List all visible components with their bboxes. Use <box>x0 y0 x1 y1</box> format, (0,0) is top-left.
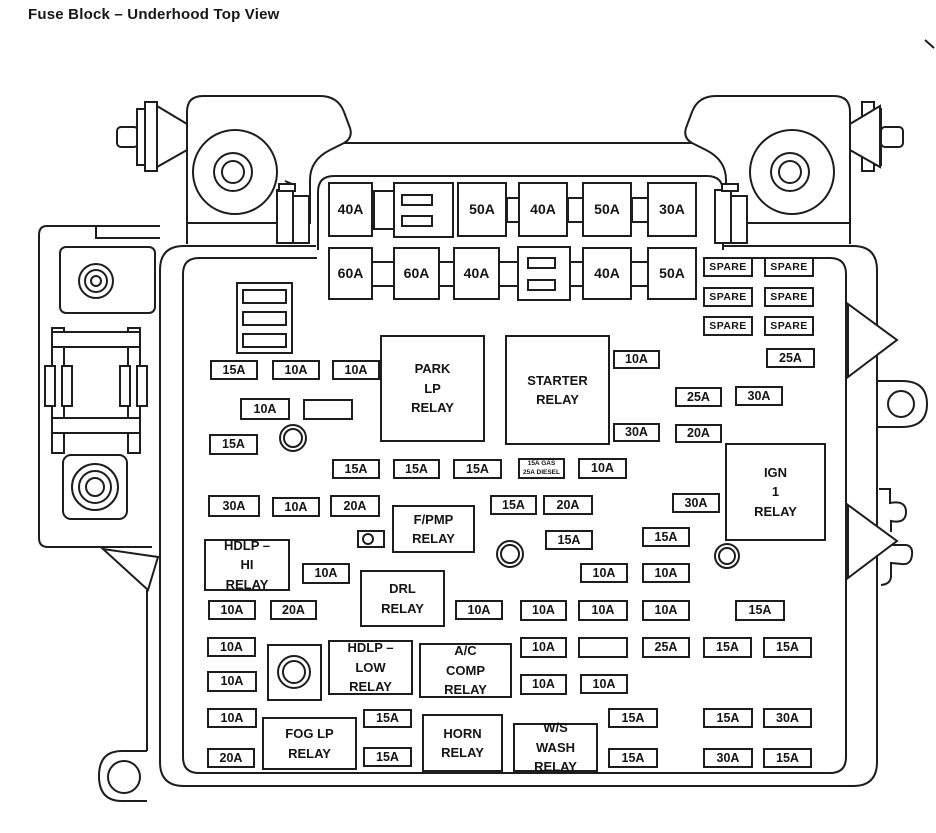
relay-fog-lp: FOG LPRELAY <box>262 717 357 770</box>
fuse-15a: 15A <box>545 530 593 550</box>
fuse-30a: 30A <box>735 386 783 406</box>
fuse-60a: 60A <box>393 247 440 300</box>
fuse-60a: 60A <box>328 247 373 300</box>
fuse-25a: 25A <box>766 348 815 368</box>
fuse-20a: 20A <box>330 495 380 517</box>
fuse-15a: 15A <box>642 527 690 547</box>
relay-ws-wash: W/SWASHRELAY <box>513 723 598 772</box>
fuse-40a: 40A <box>453 247 500 300</box>
fuse-15a: 15A <box>490 495 537 515</box>
blank-fuse <box>303 399 353 420</box>
fuse-block-diagram: Fuse Block – Underhood Top View <box>0 0 936 833</box>
fuse-40a: 40A <box>582 247 632 300</box>
fuse-10a: 10A <box>455 600 503 620</box>
fuse-10a: 10A <box>207 637 256 657</box>
blank-fuse <box>578 637 628 658</box>
fuse-10a: 10A <box>520 674 567 695</box>
fuse-10a: 10A <box>580 674 628 694</box>
fuse-15a: 15A <box>393 459 440 479</box>
fuse-15a: 15A <box>763 748 812 768</box>
relay-horn: HORNRELAY <box>422 714 503 772</box>
fuse-25a: 25A <box>675 387 722 407</box>
fuse-and-relay-layer: 40A50A40A50A30A60A60A40A40A50A25A10A25A3… <box>0 0 936 833</box>
fuse-10a: 10A <box>207 708 257 728</box>
fuse-50a: 50A <box>582 182 632 237</box>
fuse-10a: 10A <box>208 600 256 620</box>
fuse-30a: 30A <box>703 748 753 768</box>
relay-park-lp: PARKLPRELAY <box>380 335 485 442</box>
fuse-10a: 10A <box>578 458 627 479</box>
fuse-15a: 15A <box>363 709 412 728</box>
relay-ac-comp: A/CCOMPRELAY <box>419 643 512 698</box>
relay-ign-1: IGN1RELAY <box>725 443 826 541</box>
fuse-15a: 15A <box>453 459 502 479</box>
fuse-10a: 10A <box>642 563 690 583</box>
fuse-30a: 30A <box>613 423 660 442</box>
spare-fuse: SPARE <box>703 287 753 307</box>
fuse-10a: 10A <box>578 600 628 621</box>
relay-hdlp-hi: HDLP –HIRELAY <box>204 539 290 591</box>
fuse-15a-gas-25a-diesel: 15A GAS25A DIESEL <box>518 458 565 479</box>
fuse-30a: 30A <box>763 708 812 728</box>
fuse-10a: 10A <box>240 398 290 420</box>
fuse-15a: 15A <box>703 708 753 728</box>
fuse-20a: 20A <box>543 495 593 515</box>
fuse-15a: 15A <box>210 360 258 380</box>
fuse-10a: 10A <box>302 563 350 584</box>
fuse-10a: 10A <box>642 600 690 621</box>
fuse-20a: 20A <box>675 424 722 443</box>
relay-drl: DRLRELAY <box>360 570 445 627</box>
fuse-50a: 50A <box>647 247 697 300</box>
fuse-25a: 25A <box>642 637 690 658</box>
fuse-15a: 15A <box>703 637 752 658</box>
relay-starter: STARTERRELAY <box>505 335 610 445</box>
fuse-30a: 30A <box>647 182 697 237</box>
fuse-40a: 40A <box>518 182 568 237</box>
fuse-20a: 20A <box>270 600 317 620</box>
fuse-20a: 20A <box>207 748 255 768</box>
relay-f-pmp: F/PMPRELAY <box>392 505 475 553</box>
fuse-10a: 10A <box>272 360 320 380</box>
fuse-30a: 30A <box>672 493 720 513</box>
fuse-10a: 10A <box>332 360 380 380</box>
fuse-15a: 15A <box>608 708 658 728</box>
fuse-15a: 15A <box>735 600 785 621</box>
fuse-40a: 40A <box>328 182 373 237</box>
fuse-50a: 50A <box>457 182 507 237</box>
fuse-10a: 10A <box>580 563 628 583</box>
fuse-15a: 15A <box>363 747 412 767</box>
fuse-10a: 10A <box>613 350 660 369</box>
fuse-15a: 15A <box>608 748 658 768</box>
fuse-10a: 10A <box>520 600 567 621</box>
spare-fuse: SPARE <box>703 257 753 277</box>
fuse-10a: 10A <box>272 497 320 517</box>
relay-hdlp-low: HDLP –LOWRELAY <box>328 640 413 695</box>
fuse-15a: 15A <box>332 459 380 479</box>
fuse-10a: 10A <box>520 637 567 658</box>
fuse-10a: 10A <box>207 671 257 692</box>
spare-fuse: SPARE <box>703 316 753 336</box>
spare-fuse: SPARE <box>764 287 814 307</box>
fuse-15a: 15A <box>763 637 812 658</box>
fuse-15a: 15A <box>209 434 258 455</box>
fuse-30a: 30A <box>208 495 260 517</box>
spare-fuse: SPARE <box>764 316 814 336</box>
spare-fuse: SPARE <box>764 257 814 277</box>
